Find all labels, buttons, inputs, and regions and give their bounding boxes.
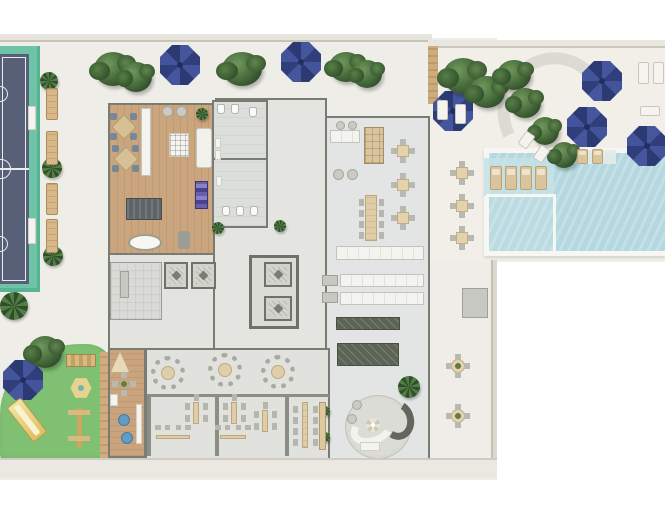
bench (46, 219, 58, 253)
sofa (196, 128, 212, 168)
lounger-w (653, 62, 664, 84)
lounger-w (640, 106, 660, 116)
pouf (118, 414, 130, 426)
outdoor-round-table (447, 355, 469, 377)
chair (348, 121, 357, 130)
wc (222, 206, 230, 216)
chair (336, 121, 345, 130)
dining-round-table (208, 353, 242, 387)
wc (250, 206, 258, 216)
lounger (577, 149, 588, 164)
buffet-counter (337, 343, 399, 366)
pool-lounger (535, 166, 547, 190)
pad (215, 150, 221, 160)
chair (347, 414, 357, 424)
bench (46, 183, 58, 215)
tree (222, 52, 262, 86)
elevator (264, 296, 292, 321)
darktable (126, 198, 162, 220)
pouf (121, 432, 133, 444)
deck-planter (462, 288, 488, 318)
counter (340, 274, 424, 287)
chair (176, 106, 187, 117)
wc (231, 104, 239, 114)
kids-table (116, 376, 132, 392)
outdoor-round-table (447, 405, 469, 427)
console (319, 402, 326, 450)
outdoor-table (452, 228, 472, 248)
pad (215, 138, 221, 148)
communal-table (359, 193, 383, 243)
pad (110, 394, 118, 406)
lounger-w (638, 62, 649, 84)
pad (360, 442, 380, 451)
elevator (264, 262, 292, 287)
chair (162, 106, 173, 117)
pool-lounger (505, 166, 517, 190)
lounger (592, 149, 603, 164)
gridtable (169, 133, 189, 157)
pool-lounger (490, 166, 502, 190)
palm (212, 222, 224, 234)
pool-deck-umbrella (627, 126, 665, 166)
dining-round-table (261, 355, 295, 389)
pad (28, 218, 36, 244)
stool (178, 231, 190, 249)
flower (366, 418, 380, 432)
bench (46, 88, 58, 120)
counter (141, 108, 151, 176)
dining-round-table (151, 356, 185, 390)
palm (274, 220, 286, 232)
counter (336, 246, 424, 260)
counter (340, 292, 424, 305)
lounger-w (455, 104, 466, 124)
play-structure (66, 406, 92, 450)
chair (347, 169, 358, 180)
floor-plan-canvas (0, 0, 665, 515)
palm (398, 376, 420, 398)
equipment-rack (195, 181, 208, 209)
palm (0, 292, 28, 320)
tree (509, 88, 541, 118)
outdoor-table (452, 163, 472, 183)
pad (136, 404, 142, 444)
elevator (191, 262, 216, 289)
terrace-umbrella (281, 42, 321, 82)
terrace-umbrella (160, 45, 200, 85)
climbing-frame (66, 354, 96, 367)
tree (551, 142, 577, 168)
lounger-w (437, 100, 448, 120)
sprite-layer (0, 0, 665, 515)
cafe-table (393, 208, 413, 228)
booth-table (228, 400, 240, 426)
counter (330, 130, 360, 143)
pool-lounger (520, 166, 532, 190)
banquette (218, 431, 248, 443)
playground-slide (6, 397, 47, 443)
palm (196, 108, 208, 120)
chair (352, 400, 362, 410)
cabinet (364, 127, 384, 164)
wc (249, 107, 257, 117)
kitchen-island (336, 317, 400, 330)
chair (333, 169, 344, 180)
dining-long-table (298, 400, 312, 450)
wc (236, 206, 244, 216)
booth-table (190, 400, 202, 426)
pool-deck-umbrella (567, 107, 607, 147)
elevator (164, 262, 188, 289)
pad (28, 106, 36, 130)
tree (120, 62, 152, 92)
graybox (322, 275, 338, 286)
workstation-cluster (110, 144, 140, 172)
cafe-table (393, 175, 413, 195)
outdoor-table (452, 196, 472, 216)
pool-deck-umbrella (582, 61, 622, 101)
banquette (154, 431, 192, 443)
tree (497, 60, 531, 90)
graybox (322, 292, 338, 303)
pad (216, 176, 222, 186)
cafe-table (393, 141, 413, 161)
wc (217, 104, 225, 114)
tree (28, 336, 62, 368)
play-hexagon (70, 377, 92, 399)
booth-table (259, 408, 271, 434)
tree (531, 117, 559, 145)
bench (46, 131, 58, 165)
massage-table (128, 234, 162, 251)
teepee (111, 352, 129, 372)
graybox (120, 271, 129, 298)
tree (352, 60, 382, 88)
workstation-cluster (108, 112, 138, 140)
